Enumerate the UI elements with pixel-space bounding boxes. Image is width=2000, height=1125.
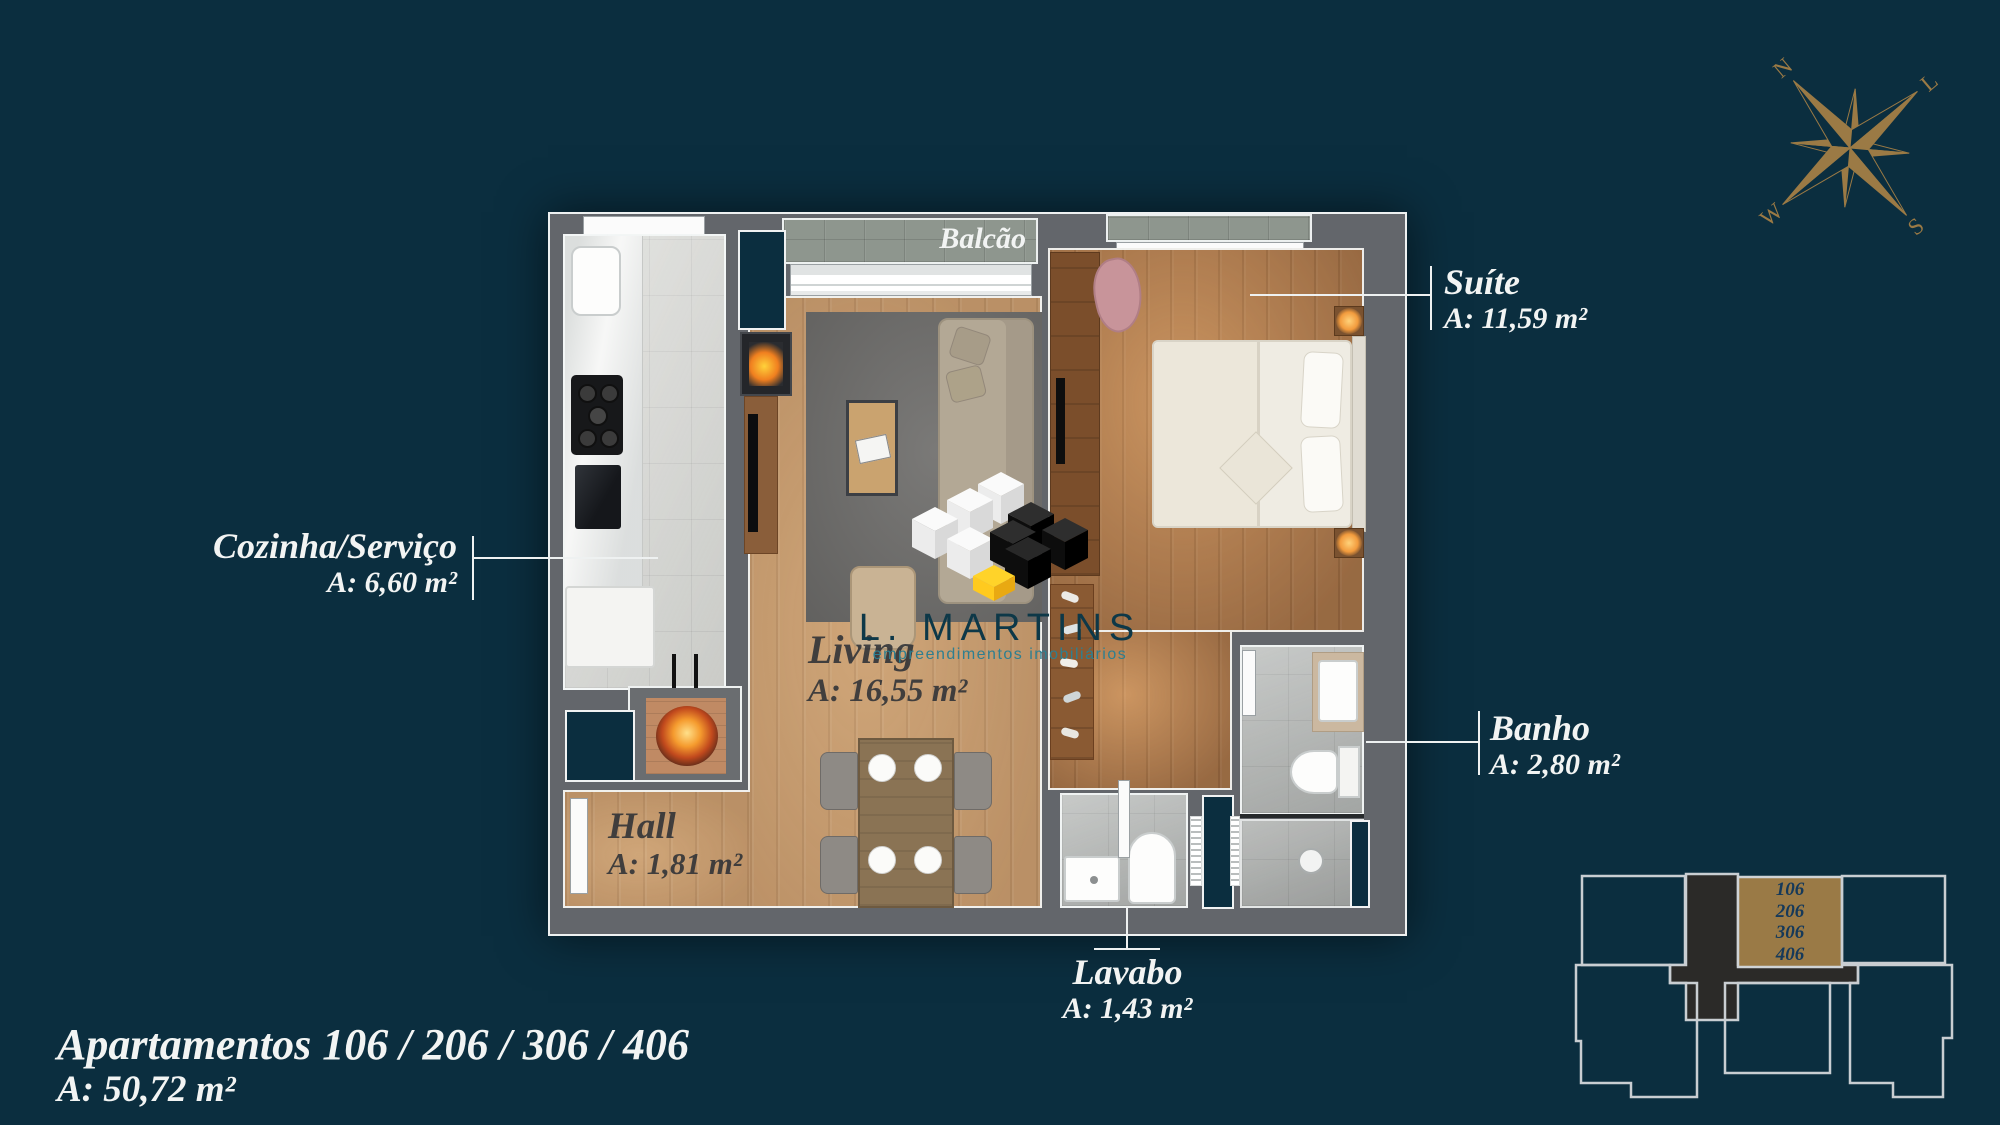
shoe bbox=[1062, 690, 1082, 704]
bed-pillow bbox=[1300, 435, 1344, 513]
kitchen-window-sill bbox=[583, 216, 705, 236]
keyplan-unit-numbers: 106 206 306 406 bbox=[1738, 879, 1842, 965]
dining-chair bbox=[954, 836, 992, 894]
bed-blanket bbox=[1154, 342, 1260, 526]
magazine bbox=[855, 434, 891, 464]
keyplan-unit-topright bbox=[1842, 876, 1945, 963]
plate bbox=[868, 846, 896, 874]
tv bbox=[748, 414, 758, 532]
suite-ledge bbox=[1106, 214, 1312, 242]
lavabo-label: Lavabo A: 1,43 m² bbox=[1040, 952, 1215, 1026]
lavabo-toilet bbox=[1128, 832, 1176, 904]
faucet bbox=[1090, 876, 1098, 884]
keyplan-unit-number: 206 bbox=[1776, 902, 1805, 921]
lavabo-area: A: 1,43 m² bbox=[1040, 992, 1215, 1026]
suite-name: Suíte bbox=[1444, 262, 1587, 302]
service-window bbox=[565, 710, 635, 782]
logo-name: L. MARTINS bbox=[858, 607, 1142, 650]
cooktop bbox=[571, 375, 623, 455]
cozinha-name: Cozinha/Serviço bbox=[157, 526, 457, 566]
banho-label: Banho A: 2,80 m² bbox=[1490, 708, 1620, 782]
leader-suite-tick bbox=[1430, 266, 1432, 330]
shoe bbox=[1060, 727, 1080, 740]
lavabo-door bbox=[1118, 780, 1130, 858]
kitchen-sink bbox=[571, 246, 621, 316]
grill-skewer bbox=[694, 654, 698, 688]
burner bbox=[600, 384, 619, 403]
compass-south: S bbox=[1903, 213, 1929, 240]
leader-lavabo-tick bbox=[1094, 948, 1160, 950]
plate bbox=[914, 846, 942, 874]
plate bbox=[914, 754, 942, 782]
leader-cozinha-tick bbox=[472, 536, 474, 600]
title-line1: Apartamentos 106 / 206 / 306 / 406 bbox=[57, 1020, 689, 1069]
lamp-glow bbox=[1336, 308, 1362, 334]
banho-toilet bbox=[1290, 750, 1338, 794]
keyplan-unit-number: 406 bbox=[1776, 945, 1805, 964]
headboard bbox=[1352, 336, 1366, 532]
balcony-sliding-door bbox=[790, 264, 1032, 296]
lamp-glow bbox=[1336, 530, 1362, 556]
title-line2: A: 50,72 m² bbox=[57, 1069, 689, 1110]
logo-cubes-icon bbox=[900, 462, 1110, 612]
cozinha-label: Cozinha/Serviço A: 6,60 m² bbox=[157, 526, 457, 600]
leader-suite bbox=[1250, 294, 1432, 296]
hall-area: A: 1,81 m² bbox=[608, 847, 742, 882]
vent-louver bbox=[1190, 816, 1202, 886]
balcao-label: Balcão bbox=[860, 222, 1026, 256]
suite-label: Suíte A: 11,59 m² bbox=[1444, 262, 1587, 336]
leader-lavabo bbox=[1126, 906, 1128, 950]
page-title: Apartamentos 106 / 206 / 306 / 406 A: 50… bbox=[57, 1020, 689, 1111]
banho-sink bbox=[1318, 660, 1358, 722]
floorplan-page: Balcão bbox=[0, 0, 2000, 1125]
suite-area: A: 11,59 m² bbox=[1444, 302, 1587, 336]
fridge bbox=[565, 586, 655, 668]
compass-north: N bbox=[1768, 53, 1797, 83]
hall-name: Hall bbox=[608, 806, 742, 847]
grill-skewer bbox=[672, 654, 676, 688]
compass-west: W bbox=[1755, 198, 1788, 231]
compass-east: L bbox=[1916, 68, 1943, 96]
vent-louver bbox=[1230, 816, 1240, 886]
coffee-table bbox=[846, 400, 898, 496]
shower-glass bbox=[1240, 814, 1364, 818]
lavabo-name: Lavabo bbox=[1040, 952, 1215, 992]
dining-chair bbox=[820, 836, 858, 894]
banho-name: Banho bbox=[1490, 708, 1620, 748]
leader-cozinha bbox=[474, 557, 658, 559]
banho-toilet-tank bbox=[1338, 746, 1360, 798]
wall-picture bbox=[740, 332, 792, 396]
banho-door bbox=[1242, 650, 1256, 716]
banho-area: A: 2,80 m² bbox=[1490, 748, 1620, 782]
keyplan-unit-number: 306 bbox=[1776, 923, 1805, 942]
living-area: A: 16,55 m² bbox=[808, 673, 967, 710]
lavabo-sink bbox=[1064, 856, 1120, 902]
hall-label: Hall A: 1,81 m² bbox=[608, 806, 742, 882]
banho-window bbox=[1350, 820, 1370, 908]
burner bbox=[578, 384, 597, 403]
entry-door bbox=[570, 798, 588, 894]
dining-chair bbox=[820, 752, 858, 810]
leader-banho-tick bbox=[1478, 711, 1480, 775]
keyplan-unit-bottomleft bbox=[1576, 965, 1697, 1097]
dining-chair bbox=[954, 752, 992, 810]
burner bbox=[588, 406, 608, 426]
wardrobe-tv bbox=[1056, 378, 1065, 464]
burner bbox=[578, 429, 597, 448]
compass-rose-icon: N L S W bbox=[1737, 28, 1963, 268]
picture-art bbox=[749, 342, 783, 386]
oven bbox=[575, 465, 621, 529]
keyplan-unit-bottomright bbox=[1850, 965, 1952, 1097]
leader-banho bbox=[1366, 741, 1480, 743]
bed-pillow bbox=[1300, 351, 1344, 429]
grill-fire bbox=[656, 706, 718, 766]
keyplan-unit-topleft bbox=[1582, 876, 1685, 965]
keyplan-unit-bottomcenter bbox=[1725, 983, 1830, 1073]
shower-head bbox=[1298, 848, 1324, 874]
logo-tagline: empreendimentos imobiliários bbox=[858, 646, 1142, 664]
living-wall-window bbox=[738, 230, 786, 330]
keyplan-unit-number: 106 bbox=[1776, 880, 1805, 899]
cozinha-area: A: 6,60 m² bbox=[157, 566, 457, 600]
burner bbox=[600, 429, 619, 448]
plate bbox=[868, 754, 896, 782]
